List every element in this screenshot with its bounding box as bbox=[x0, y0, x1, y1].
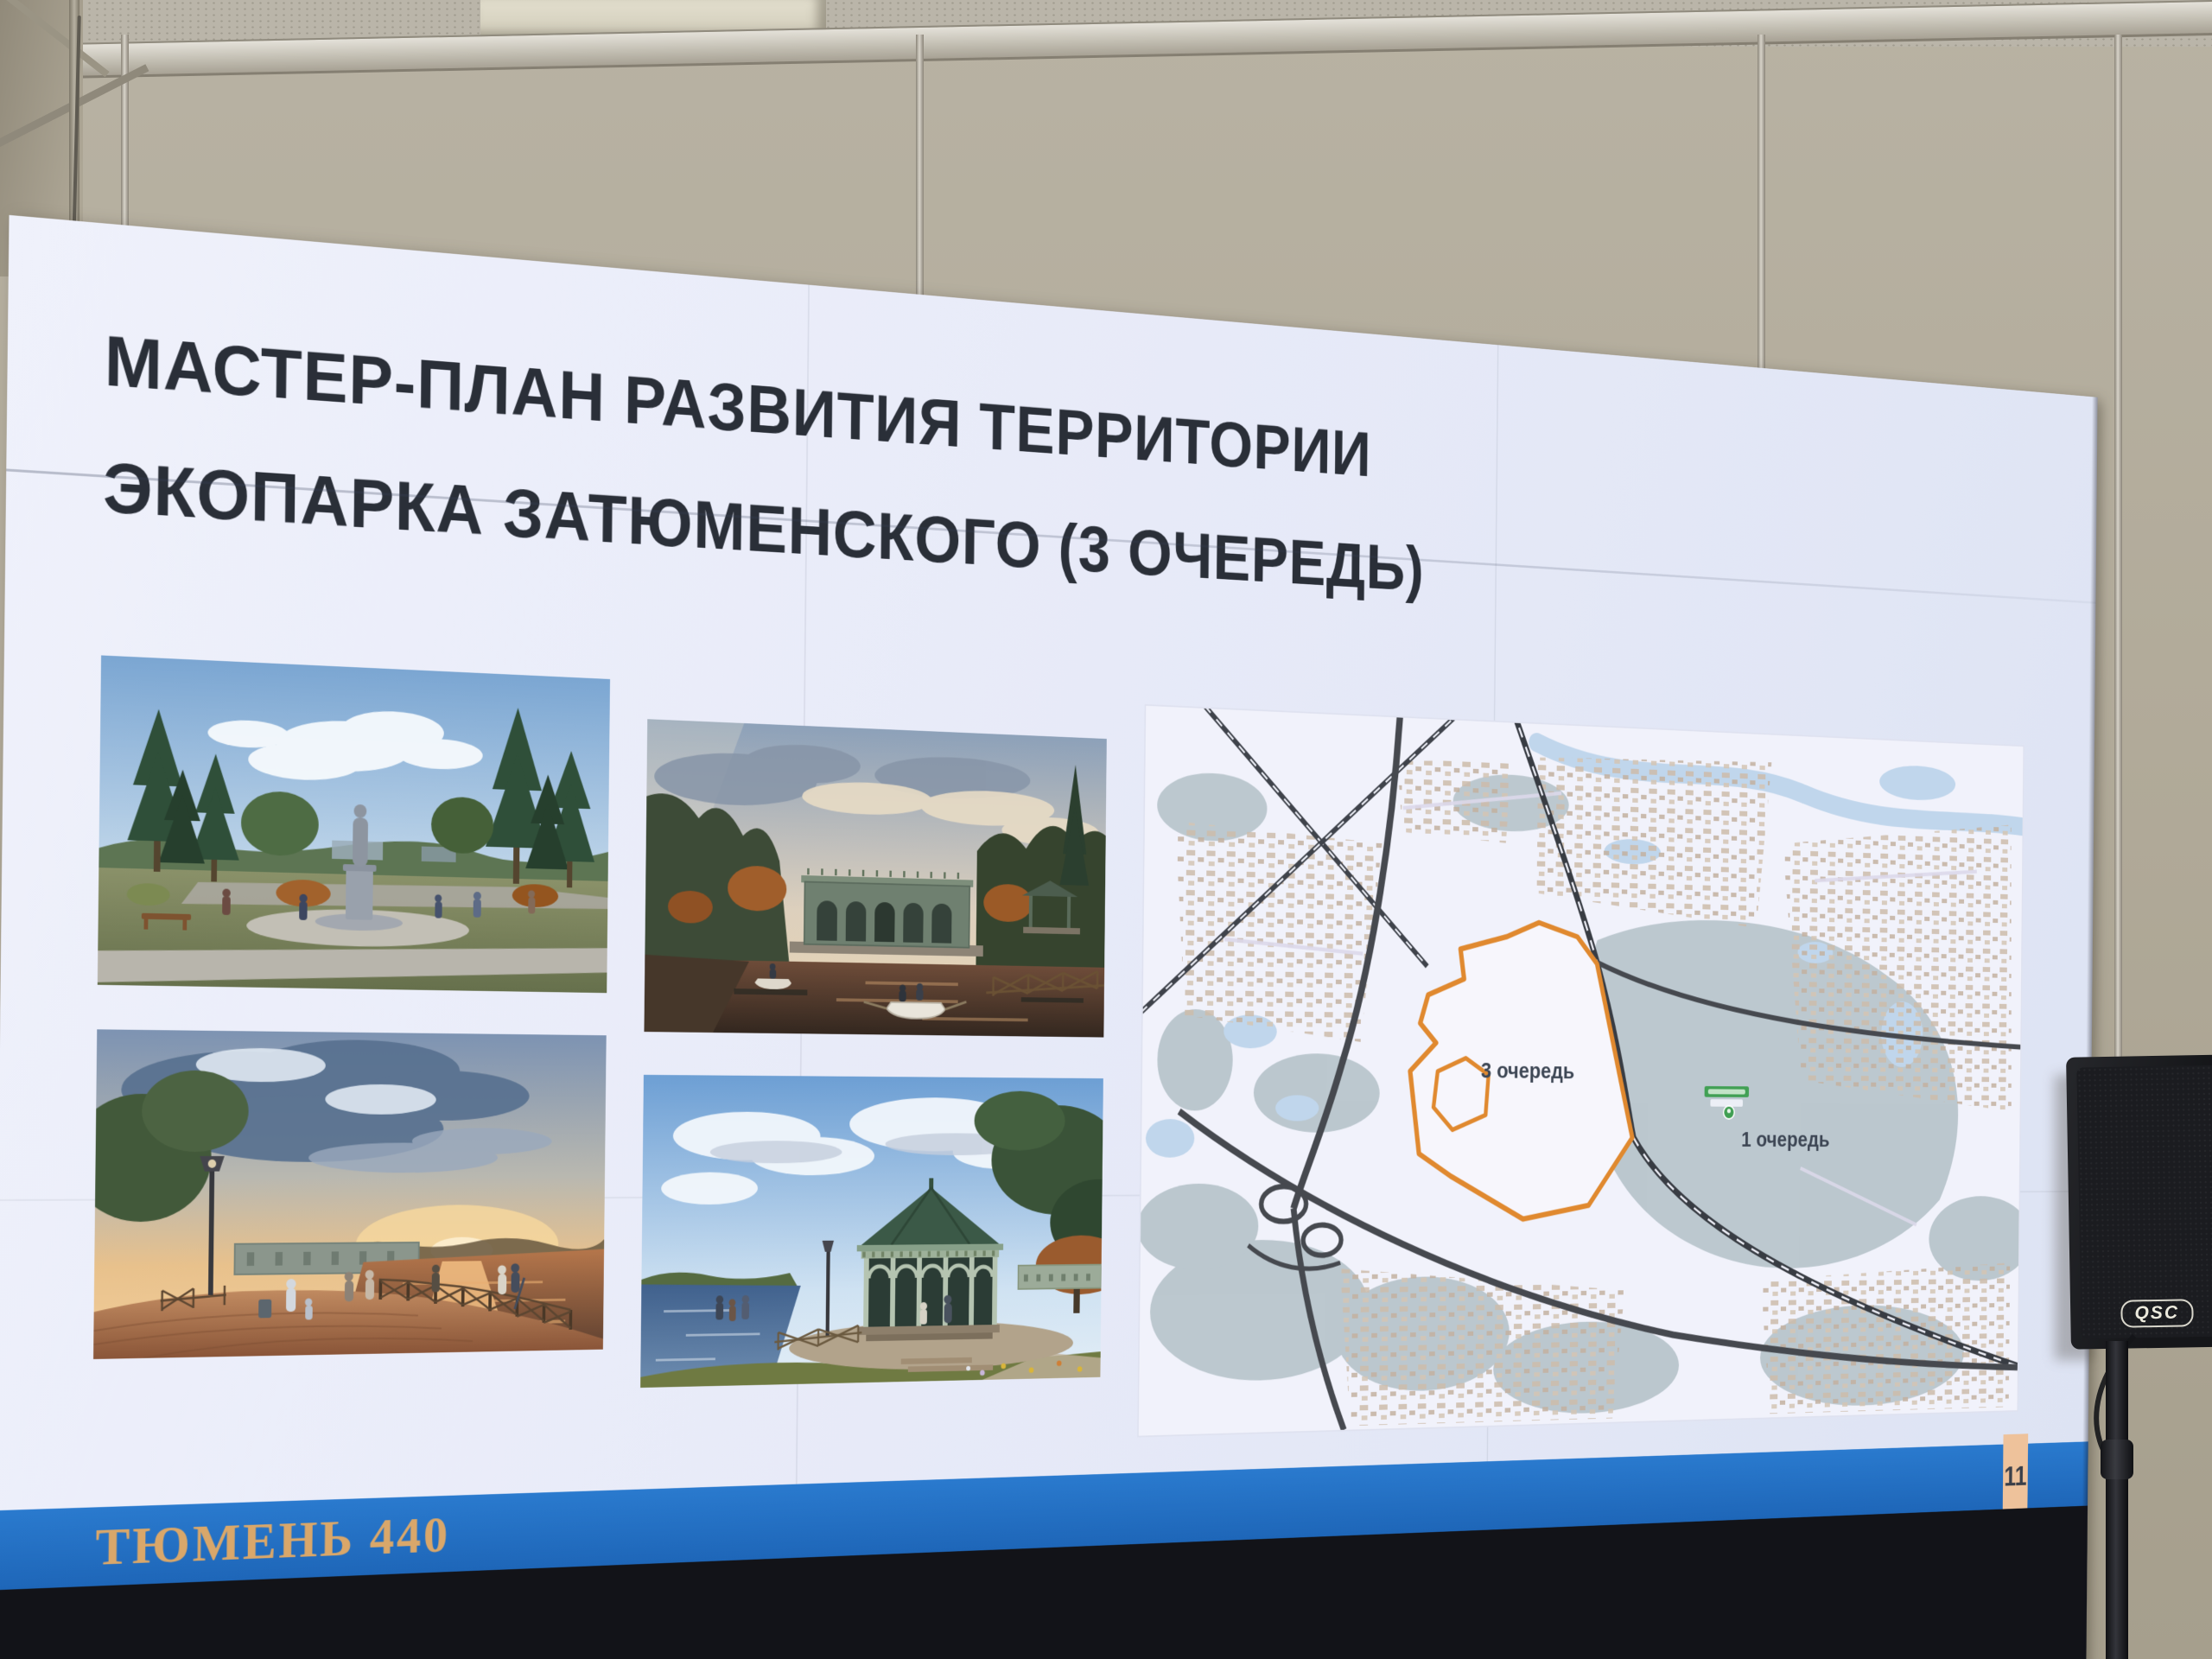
render-lakeside-gazebo-image bbox=[640, 1075, 1103, 1388]
slide: МАСТЕР-ПЛАН РАЗВИТИЯ ТЕРРИТОРИИ ЭКОПАРКА… bbox=[0, 215, 2098, 1510]
speaker-grille bbox=[2076, 1065, 2212, 1338]
led-screen: МАСТЕР-ПЛАН РАЗВИТИЯ ТЕРРИТОРИИ ЭКОПАРКА… bbox=[0, 215, 2098, 1659]
event-logo: ТЮМЕНЬ 440 bbox=[95, 1505, 450, 1578]
speaker-stand bbox=[2106, 1341, 2128, 1659]
map-poi-label bbox=[1704, 1086, 1749, 1107]
slide-title: МАСТЕР-ПЛАН РАЗВИТИЯ ТЕРРИТОРИИ ЭКОПАРКА… bbox=[103, 324, 1426, 601]
map-phase1-label: 1 очередь bbox=[1741, 1128, 1829, 1152]
speaker: QSC bbox=[2066, 1054, 2212, 1349]
render-pond-boats-image bbox=[644, 719, 1106, 1037]
speaker-stand-collar bbox=[2101, 1440, 2133, 1479]
render-park-monument-image bbox=[98, 655, 610, 993]
map-phase3-label: 3 очередь bbox=[1481, 1058, 1574, 1084]
render-sunset-promenade-image bbox=[93, 1029, 607, 1359]
city-map: 3 очередь 1 очередь bbox=[1137, 704, 2024, 1438]
exhibition-scene: МАСТЕР-ПЛАН РАЗВИТИЯ ТЕРРИТОРИИ ЭКОПАРКА… bbox=[0, 0, 2212, 1659]
page-number: 11 bbox=[2004, 1461, 2026, 1492]
map-poi-pin bbox=[1724, 1106, 1735, 1119]
speaker-brand-logo: QSC bbox=[2120, 1299, 2193, 1327]
